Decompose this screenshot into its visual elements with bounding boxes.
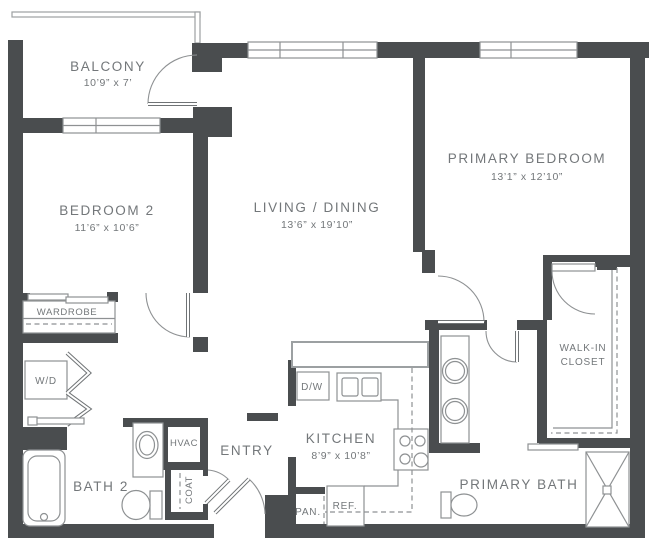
walk-in-closet-label-1: WALK-IN <box>560 343 607 354</box>
floor-plan-drawing: BALCONY 10’9” x 7’ BEDROOM 2 11’6” x 10’… <box>0 0 649 552</box>
bedroom2-dims: 11’6” x 10’6” <box>75 222 140 234</box>
balcony-railing <box>12 12 200 43</box>
bedroom2-window <box>63 118 160 133</box>
living-dining-dims: 13’6” x 19’10” <box>281 219 353 231</box>
dishwasher-label: D/W <box>301 382 323 393</box>
bath2-toilet <box>122 491 162 520</box>
coat-label: COAT <box>184 476 195 504</box>
primary-bedroom-window <box>480 42 577 58</box>
primary-bedroom-dims: 13’1” x 12’10” <box>491 171 563 183</box>
balcony-label: BALCONY <box>70 59 146 74</box>
floor-plan: BALCONY 10’9” x 7’ BEDROOM 2 11’6” x 10’… <box>0 0 649 552</box>
pantry-label: PAN. <box>295 507 321 518</box>
living-dining-label: LIVING / DINING <box>254 200 381 215</box>
windows <box>63 42 577 133</box>
primary-bath-vanity <box>441 336 469 443</box>
living-window <box>248 42 377 58</box>
entry-label: ENTRY <box>220 443 274 458</box>
bedroom2-label: BEDROOM 2 <box>59 203 154 218</box>
hvac-label: HVAC <box>170 438 198 449</box>
refrigerator-label: REF. <box>333 501 358 512</box>
washer-dryer <box>25 353 89 425</box>
kitchen-dims: 8’9” x 10’8” <box>311 450 370 462</box>
primary-bedroom-label: PRIMARY BEDROOM <box>448 151 607 166</box>
walk-in-closet-label-2: CLOSET <box>561 357 606 368</box>
primary-bedroom-door <box>438 276 484 322</box>
primary-bath-label: PRIMARY BATH <box>460 477 579 492</box>
shower <box>586 452 629 527</box>
bath2-label: BATH 2 <box>73 479 129 494</box>
coat-closet-door <box>206 470 229 503</box>
walls <box>8 40 649 538</box>
primary-bath-corridor-door <box>486 331 517 362</box>
kitchen-label: KITCHEN <box>306 431 376 446</box>
bath-opening-header <box>528 444 578 450</box>
walk-in-closet-door <box>552 264 595 314</box>
bedroom2-door <box>146 293 190 337</box>
wardrobe-label: WARDROBE <box>37 307 97 318</box>
washer-dryer-label: W/D <box>35 376 57 387</box>
bathtub <box>23 450 65 526</box>
balcony-door <box>148 55 197 104</box>
kitchen-peninsula <box>292 342 428 367</box>
stove <box>394 429 428 470</box>
hall-shelf <box>28 417 84 425</box>
bath2-sink <box>133 423 163 477</box>
primary-bath-toilet <box>441 492 477 518</box>
kitchen-sink <box>337 373 381 401</box>
balcony-dims: 10’9” x 7’ <box>84 77 133 89</box>
